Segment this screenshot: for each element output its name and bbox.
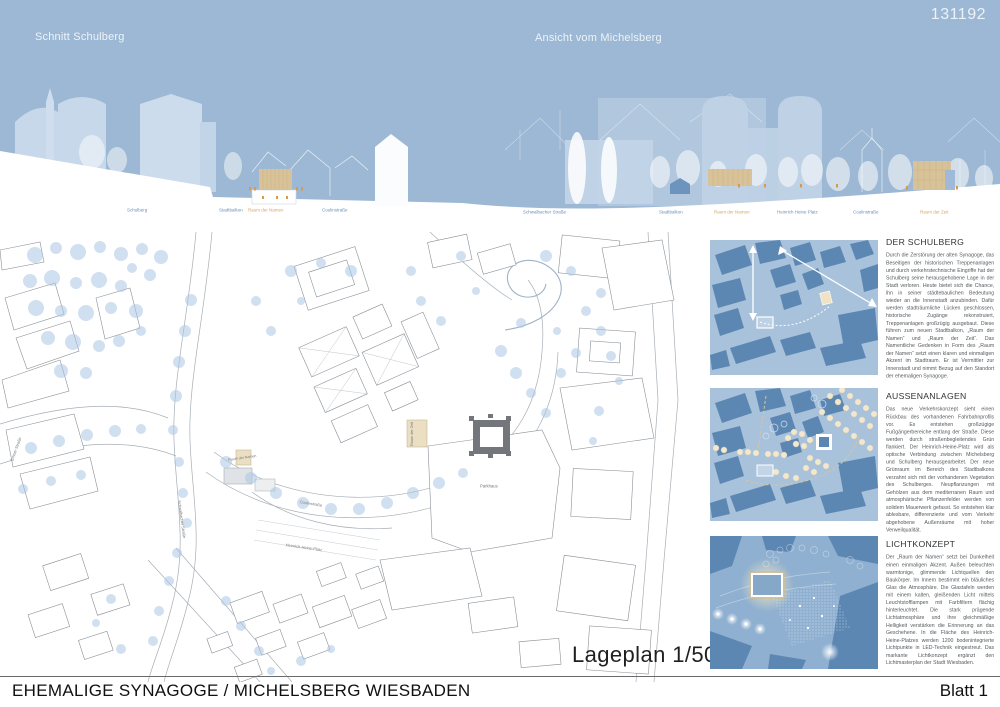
section-title-right: Ansicht vom Michelsberg [535,32,662,44]
section-label: Schwalbacher Straße [523,210,566,215]
section-title-left: Schnitt Schulberg [35,31,125,43]
plan-label-parkhaus: Parkhaus [480,484,498,489]
thumbnail-schulberg-plan [710,240,878,375]
synagogue-footprint [469,414,511,458]
raum-der-namen-section [259,169,292,190]
section-label: Heinrich Heine Platz [777,210,818,215]
thumbnail-lichtkonzept [710,536,878,669]
plan-caption: Lageplan 1/500 [572,642,729,668]
site-plan [0,230,700,682]
section-label: Stadtbalkon [219,208,243,213]
footer-divider [0,676,1000,677]
section-label: Coulinstraße [853,210,879,215]
raum-der-namen-elevation [708,169,752,186]
panel-body-schulberg: Durch die Zerstörung der alten Synagoge,… [886,252,994,380]
section-label: Raum der Namen [248,208,284,213]
panel-heading-schulberg: DER SCHULBERG [886,237,964,247]
plan-label-raum-der-zeit: Raum der Zeit [410,422,414,446]
panel-body-aussenanlagen: Das neue Verkehrskonzept sieht einen Rüc… [886,406,994,534]
panel-body-lichtkonzept: Der „Raum der Namen“ setzt bei Dunkelhei… [886,554,994,667]
thumbnail-aussenanlagen-plan [710,388,878,521]
section-drawings [0,0,1000,230]
section-label: Stadtbalkon [659,210,683,215]
section-label: Raum der Zeit [920,210,949,215]
panel-heading-lichtkonzept: LICHTKONZEPT [886,539,955,549]
section-label: Schulberg [127,208,147,213]
section-label: Coulinstraße [322,208,348,213]
presentation-board: Schnitt Schulberg Ansicht vom Michelsber… [0,0,1000,707]
project-title: EHEMALIGE SYNAGOGE / MICHELSBERG WIESBAD… [12,681,470,701]
panel-heading-aussenanlagen: AUSSENANLAGEN [886,391,967,401]
raum-der-zeit-elevation [913,161,955,190]
section-label: Raum der Namen [714,210,750,215]
sheet-number: Blatt 1 [940,681,988,701]
competition-number: 131192 [931,6,986,24]
